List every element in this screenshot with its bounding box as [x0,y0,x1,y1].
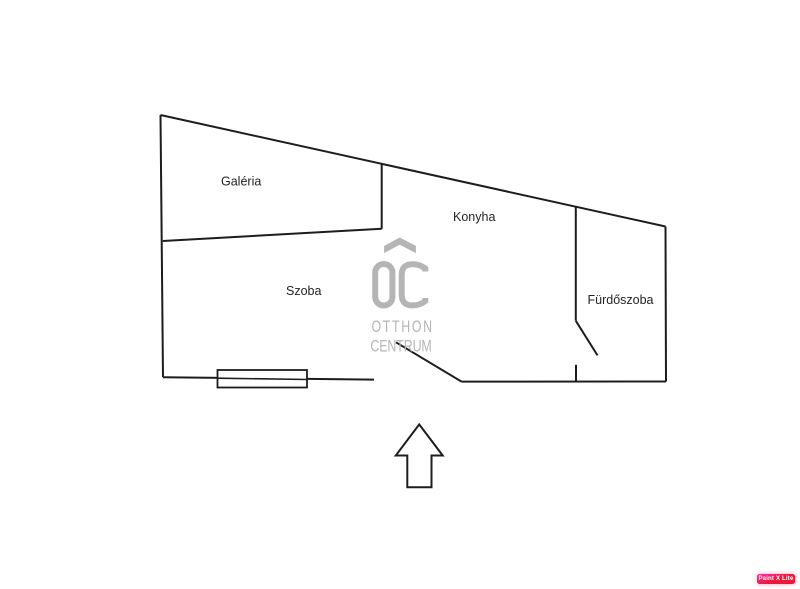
svg-text:Szoba: Szoba [286,284,321,298]
svg-text:Konyha: Konyha [453,210,495,224]
svg-text:OTTHON: OTTHON [371,319,433,337]
svg-text:Fürdőszoba: Fürdőszoba [588,293,654,307]
svg-text:Galéria: Galéria [221,175,261,189]
svg-text:CENTRUM: CENTRUM [370,338,431,356]
